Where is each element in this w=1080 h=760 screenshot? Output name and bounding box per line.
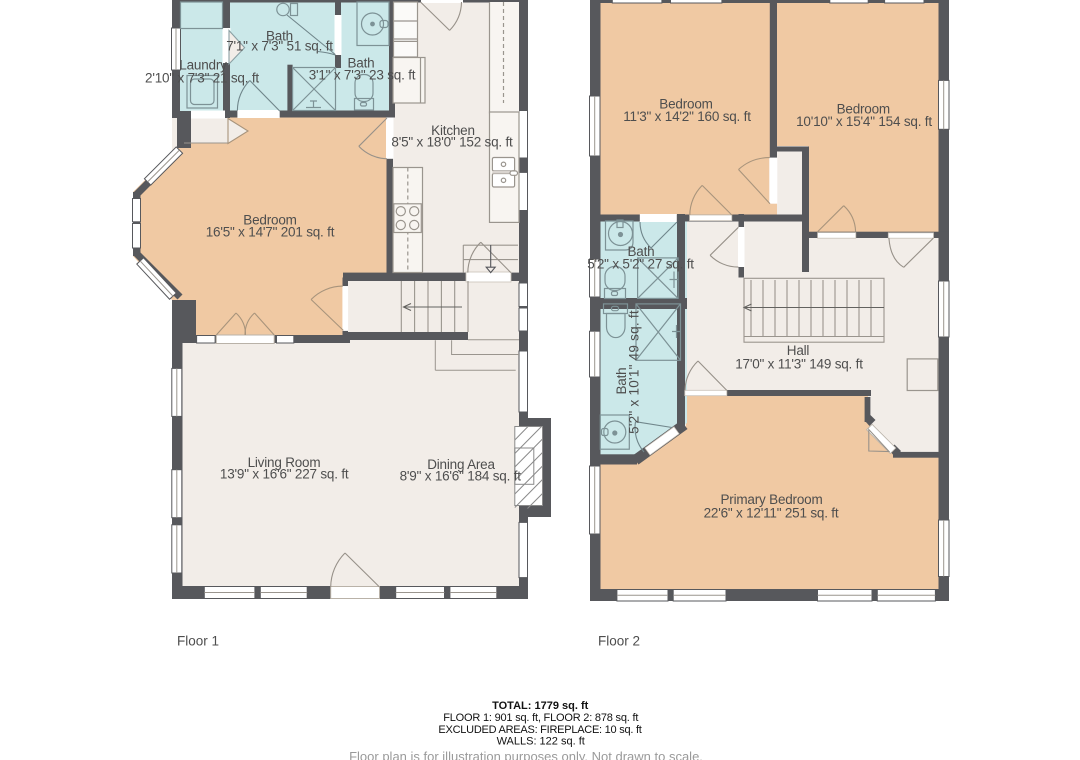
svg-text:16'5" x 14'7" 201 sq. ft: 16'5" x 14'7" 201 sq. ft — [206, 224, 335, 239]
svg-text:Floor plan is for illustration: Floor plan is for illustration purposes … — [349, 749, 703, 760]
svg-text:7'1" x 7'3" 51 sq. ft: 7'1" x 7'3" 51 sq. ft — [226, 39, 333, 54]
svg-text:EXCLUDED AREAS: FIREPLACE: 10: EXCLUDED AREAS: FIREPLACE: 10 sq. ft — [438, 724, 641, 736]
svg-text:WALLS: 122 sq. ft: WALLS: 122 sq. ft — [497, 736, 585, 748]
svg-text:22'6" x 12'11" 251 sq. ft: 22'6" x 12'11" 251 sq. ft — [704, 506, 839, 521]
svg-text:13'9" x 16'6" 227 sq. ft: 13'9" x 16'6" 227 sq. ft — [220, 466, 349, 481]
svg-text:Floor 1: Floor 1 — [177, 634, 219, 649]
svg-text:8'9" x 16'6" 184 sq. ft: 8'9" x 16'6" 184 sq. ft — [400, 468, 522, 483]
svg-text:17'0" x 11'3" 149 sq. ft: 17'0" x 11'3" 149 sq. ft — [735, 357, 863, 372]
svg-text:3'1" x 7'3" 23 sq. ft: 3'1" x 7'3" 23 sq. ft — [309, 68, 416, 83]
svg-text:TOTAL: 1779 sq. ft: TOTAL: 1779 sq. ft — [492, 700, 589, 712]
svg-text:Floor 2: Floor 2 — [598, 634, 640, 649]
svg-text:8'5" x 18'0" 152 sq. ft: 8'5" x 18'0" 152 sq. ft — [391, 135, 513, 150]
svg-text:FLOOR 1: 901 sq. ft, FLOOR 2:: FLOOR 1: 901 sq. ft, FLOOR 2: 878 sq. ft — [443, 712, 638, 724]
svg-text:2'10" x 7'3" 21 sq. ft: 2'10" x 7'3" 21 sq. ft — [145, 70, 259, 85]
svg-text:5'2" x 10'1" 49 sq. ft: 5'2" x 10'1" 49 sq. ft — [627, 310, 642, 434]
svg-text:10'10" x 15'4" 154 sq. ft: 10'10" x 15'4" 154 sq. ft — [796, 114, 932, 129]
svg-text:5'2" x 5'2" 27 sq. ft: 5'2" x 5'2" 27 sq. ft — [587, 257, 694, 272]
svg-text:11'3" x 14'2" 160 sq. ft: 11'3" x 14'2" 160 sq. ft — [623, 109, 751, 124]
